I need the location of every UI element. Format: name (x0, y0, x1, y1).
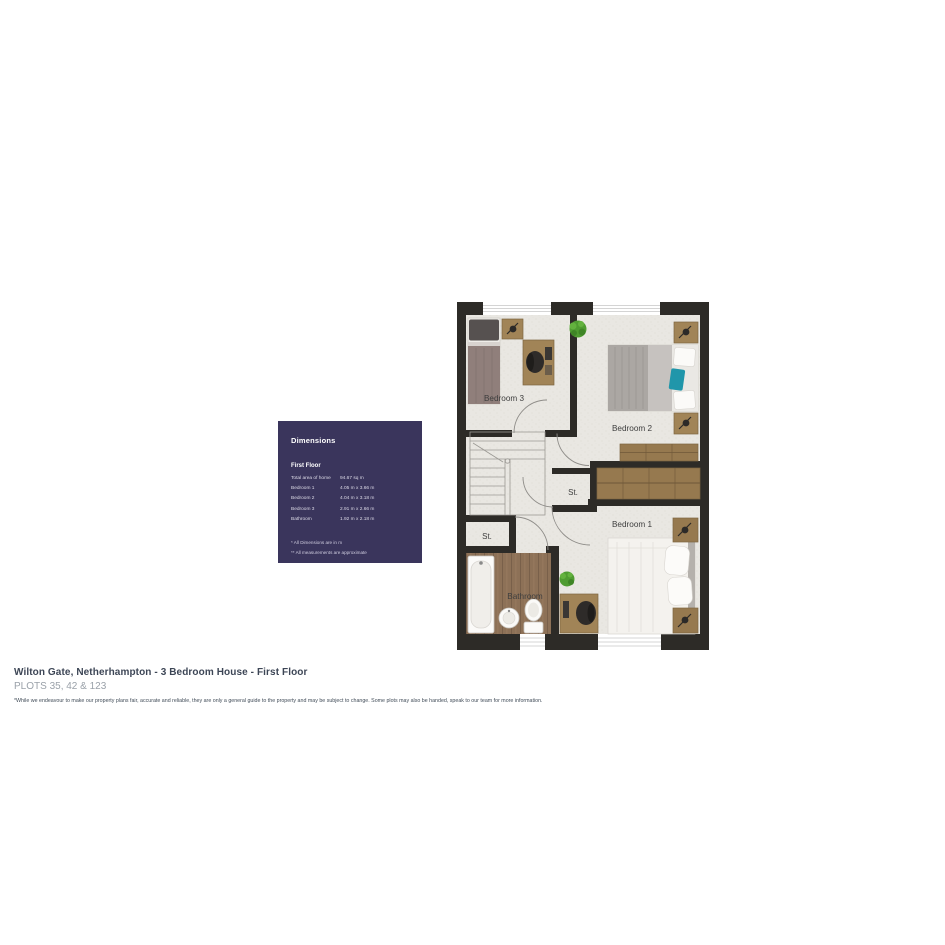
bathroom-label: Bathroom (507, 592, 543, 601)
bedroom2-bed (608, 345, 698, 411)
dimension-value: 94.67 sq m (340, 476, 409, 481)
bedroom1-desk (560, 594, 598, 633)
window (483, 302, 551, 315)
bathtub (468, 556, 494, 633)
dimension-value: 2.91 m x 2.66 m (340, 507, 409, 512)
plant (560, 572, 575, 587)
dimension-label: Bathroom (291, 517, 340, 522)
sink (499, 608, 519, 628)
dimensions-footnotes: * All Dimensions are in m ** All measure… (291, 535, 412, 555)
bedroom1-closet (597, 468, 700, 499)
bedroom2-wardrobe (620, 444, 698, 461)
dimensions-row: Bathroom 1.92 m x 2.18 m (291, 515, 409, 525)
footer: Wilton Gate, Netherhampton - 3 Bedroom H… (14, 667, 934, 704)
bedroom2-label: Bedroom 2 (612, 424, 652, 433)
storage-hall-label: St. (568, 488, 578, 497)
dimensions-floor-heading: First Floor (291, 463, 409, 469)
dimension-value: 1.92 m x 2.18 m (340, 517, 409, 522)
page: Dimensions First Floor Total area of hom… (0, 0, 945, 945)
dimension-value: 4.05 m x 3.66 m (340, 486, 409, 491)
bedroom1-side-table (673, 608, 698, 633)
page-title: Wilton Gate, Netherhampton - 3 Bedroom H… (14, 667, 934, 678)
dimension-value: 4.04 m x 3.18 m (340, 496, 409, 501)
window (520, 634, 545, 650)
dimensions-row: Bedroom 3 2.91 m x 2.66 m (291, 504, 409, 514)
bedroom1-label: Bedroom 1 (612, 520, 652, 529)
bedroom1-side-table (673, 518, 698, 542)
dimensions-row: Bedroom 1 4.05 m x 3.66 m (291, 483, 409, 493)
dimensions-panel: Dimensions First Floor Total area of hom… (278, 421, 422, 563)
plant (570, 321, 587, 338)
dimensions-table: Total area of home 94.67 sq m Bedroom 1 … (291, 473, 409, 525)
footnote: * All Dimensions are in m (291, 540, 412, 545)
toilet (524, 599, 543, 633)
floor-plan: Bedroom 3 Bedroom 2 St. St. Bedroom 1 Ba… (457, 302, 709, 650)
storage-left-label: St. (482, 532, 492, 541)
dimension-label: Bedroom 1 (291, 486, 340, 491)
dimensions-panel-title: Dimensions (291, 436, 409, 445)
dimension-label: Bedroom 3 (291, 507, 340, 512)
bedroom3-desk (523, 340, 554, 385)
window (593, 302, 660, 315)
dimensions-row: Bedroom 2 4.04 m x 3.18 m (291, 494, 409, 504)
plots-subtitle: PLOTS 35, 42 & 123 (14, 681, 934, 692)
bedroom2-side-table (674, 322, 698, 343)
bedroom3-bed (468, 318, 500, 404)
dimensions-row: Total area of home 94.67 sq m (291, 473, 409, 483)
teal-pillow (669, 368, 686, 391)
footnote: ** All measurements are approximate (291, 550, 412, 555)
bedroom3-side-table (502, 319, 523, 339)
dimension-label: Bedroom 2 (291, 496, 340, 501)
bedroom2-side-table (674, 413, 698, 434)
dimension-label: Total area of home (291, 476, 340, 481)
window (598, 634, 661, 650)
bedroom3-label: Bedroom 3 (484, 394, 524, 403)
disclaimer-text: *While we endeavour to make our property… (14, 698, 934, 704)
floor-plan-drawing: Bedroom 3 Bedroom 2 St. St. Bedroom 1 Ba… (457, 302, 709, 650)
